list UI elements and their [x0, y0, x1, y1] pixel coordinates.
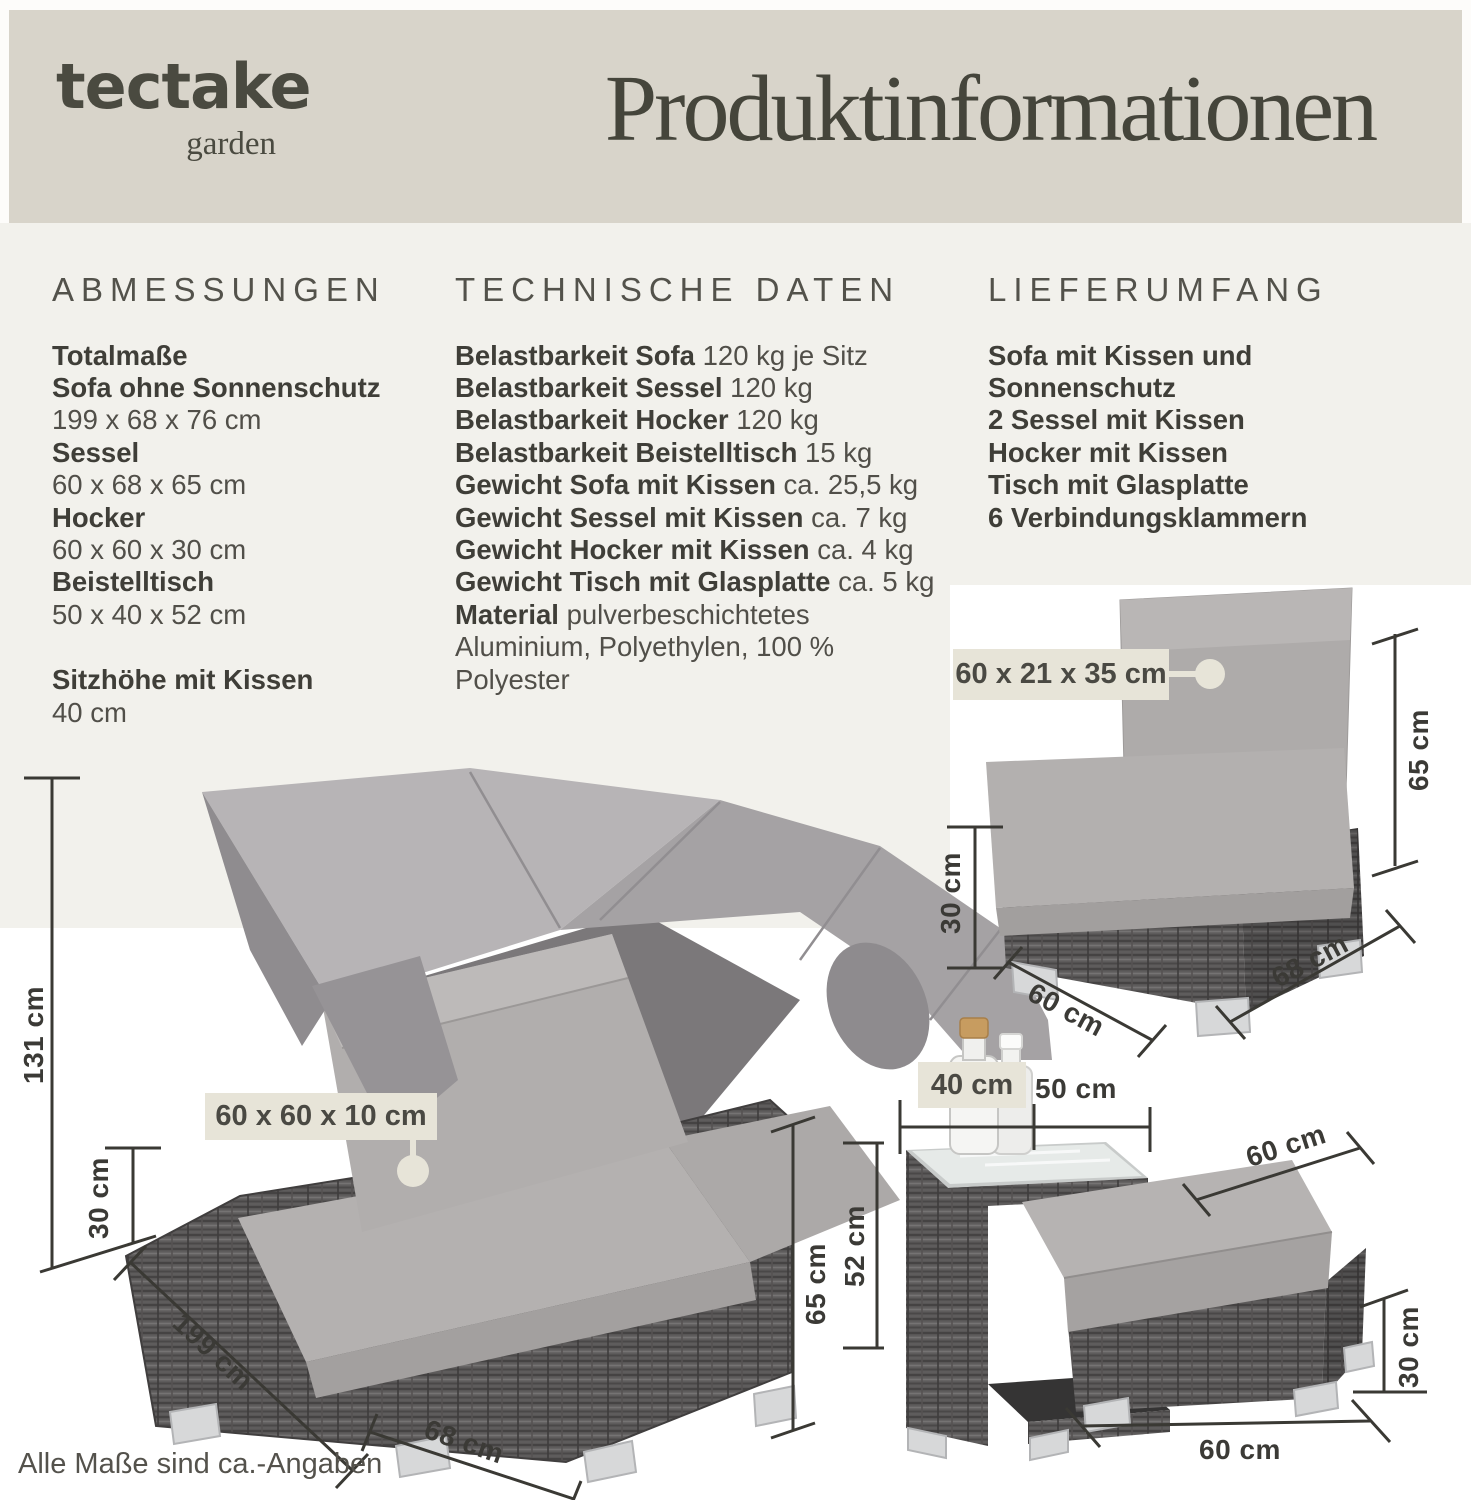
dim-chair-base-height: 30 cm: [935, 852, 967, 934]
footnote: Alle Maße sind ca.-Angaben: [18, 1448, 382, 1481]
table-width-tag: 40 cm: [918, 1062, 1026, 1108]
dim-ottoman-height: 30 cm: [1393, 1306, 1425, 1388]
dim-table-depth: 50 cm: [1035, 1073, 1117, 1105]
dim-chair-height: 65 cm: [1403, 709, 1435, 791]
sofa-cushion-tag: 60 x 60 x 10 cm: [205, 1093, 437, 1140]
dim-ottoman-width-bottom: 60 cm: [1199, 1434, 1281, 1466]
dim-sofa-height: 65 cm: [800, 1243, 832, 1325]
product-illustration-overlay: [0, 0, 1471, 1500]
dim-table-height: 52 cm: [839, 1205, 871, 1287]
dim-sofa-base-height: 30 cm: [83, 1157, 115, 1239]
armchair-seat-cushion: [986, 748, 1354, 908]
dim-sofa-total-height: 131 cm: [18, 986, 50, 1084]
chair-cushion-tag: 60 x 21 x 35 cm: [953, 649, 1169, 700]
product-info-sheet: tectake garden Produktinformationen ABME…: [0, 0, 1471, 1500]
